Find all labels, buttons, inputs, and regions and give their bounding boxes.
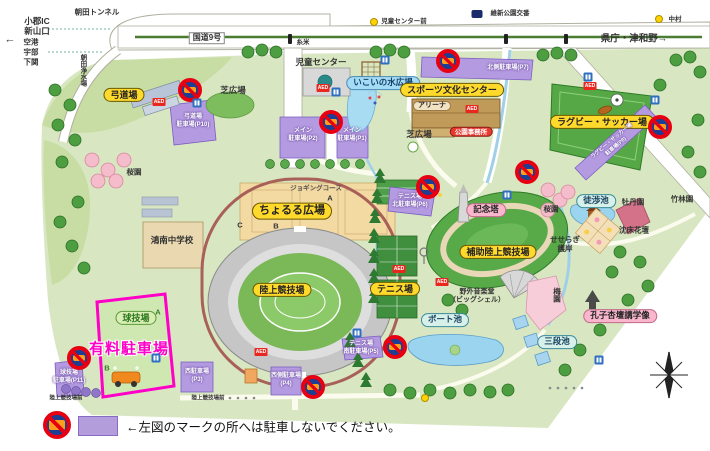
restroom-icon <box>584 73 593 82</box>
aed-icon: AED <box>153 98 166 106</box>
dest-shinyamaguchi: 新山口 <box>24 26 50 36</box>
jogging-course-label: ジョギングコース <box>290 185 342 193</box>
car-icon <box>654 124 666 130</box>
legend-no-parking-icon <box>43 411 71 439</box>
bandshell-label: 野外音楽堂 （ビッグシェル） <box>449 289 505 306</box>
konan-school-label: 鴻南中学校 <box>151 235 194 245</box>
marker-c: C <box>237 221 242 230</box>
itoyone-label: 糸米 <box>297 39 310 47</box>
kyugijo-label: 球技場 <box>115 311 156 325</box>
north-p7-label: 北側駐車場(P7) <box>487 65 528 73</box>
restroom-icon <box>381 56 390 65</box>
ishin-koban-label: 維新公園交番 <box>491 10 530 18</box>
bus-icon <box>49 420 65 430</box>
sports-center-label: スポーツ文化センター <box>400 83 504 97</box>
restroom-icon <box>152 354 161 363</box>
marker-a: A <box>327 194 332 203</box>
shibahiroba-nw-label: 芝広場 <box>220 85 246 95</box>
rikujo-mae-stop-2: 陸上競技場前 <box>191 396 224 403</box>
legend-parking-swatch <box>78 416 118 436</box>
restroom-icon <box>353 329 362 338</box>
kinento-label: 記念塔 <box>466 203 506 217</box>
tennis-s-p5-label: テニス場 南駐車場(P5) <box>343 341 378 357</box>
bus-stop-dot <box>370 18 378 26</box>
main-p2-label: メイン 駐車場(P2) <box>288 128 317 144</box>
restroom-icon <box>651 96 660 105</box>
no-parking-icon <box>648 115 672 139</box>
zone-marker-b: B <box>104 364 109 373</box>
no-parking-icon <box>416 175 440 199</box>
shibahiroba-c-label: 芝広場 <box>406 129 432 139</box>
chikurin-label: 竹林園 <box>671 195 694 204</box>
no-parking-icon <box>436 49 460 73</box>
arena-label: アリーナ <box>413 101 451 111</box>
no-parking-icon <box>515 160 539 184</box>
west-p3-label: 西駐車場 (P3) <box>185 369 209 385</box>
jido-center-mae-stop: 児童センター前 <box>381 18 427 26</box>
bus-icon <box>73 355 85 361</box>
ume-garden-label: 梅園 <box>553 288 562 303</box>
rikujo-label: 陸上競技場 <box>252 283 311 297</box>
rugby-soccer-label: ラグビー・サッカー場 <box>550 115 654 129</box>
no-parking-icon <box>67 346 91 370</box>
confucius-statue-label: 孔子杏壇講学像 <box>583 309 657 323</box>
car-icon <box>389 344 401 350</box>
sakura-west-label: 桜園 <box>127 168 142 177</box>
sunken-garden-label: 沈床花壇 <box>619 226 649 235</box>
car-icon <box>521 169 533 175</box>
restroom-icon <box>595 356 604 365</box>
car-icon <box>325 119 337 125</box>
bus-stop-dot <box>421 394 429 402</box>
park-map: 小郡IC 新山口 空港 宇部 下関 ← 朝田トンネル 国道9号 朝田浄水場 糸米… <box>0 0 710 451</box>
dest-ogori: 小郡IC <box>24 16 50 26</box>
aed-icon: AED <box>584 82 597 90</box>
car-icon <box>422 184 434 190</box>
park-office-label: 公園事務所 <box>450 127 493 137</box>
kyudojo-label: 弓道場 <box>103 88 144 102</box>
sandan-pond-label: 三段池 <box>537 335 577 349</box>
botan-garden-label: 牡丹園 <box>622 198 645 207</box>
dest-ube: 宇部 <box>24 48 39 57</box>
traffic-light-icon <box>288 34 292 44</box>
jido-center-label: 児童センター <box>295 57 346 67</box>
tennis-label: テニス場 <box>370 282 420 296</box>
helipad-icon <box>408 142 419 153</box>
aed-icon: AED <box>466 105 479 113</box>
no-parking-icon <box>383 335 407 359</box>
aed-icon: AED <box>393 265 406 273</box>
aed-icon: AED <box>436 278 449 286</box>
restroom-icon <box>332 88 341 97</box>
asada-water-label: 朝田浄水場 <box>78 54 86 87</box>
kyugijo-p11-label: 球技場 駐車場(P11) <box>53 370 85 386</box>
bus-icon <box>184 87 196 93</box>
no-parking-icon <box>301 375 325 399</box>
west-side-p4-label: 西側駐車場 (P4) <box>271 373 301 389</box>
rikujo-mae-stop: 陸上競技場前 <box>49 396 82 403</box>
traffic-light-icon <box>564 34 568 44</box>
no-parking-icon <box>319 110 343 134</box>
route9-label: 国道9号 <box>189 32 225 44</box>
restroom-icon <box>503 191 512 200</box>
police-box-icon <box>472 10 483 18</box>
kencho-direction: 県庁・津和野→ <box>601 33 668 44</box>
main-p1-label: メイン 駐車場(P1) <box>337 128 366 144</box>
nakamura-stop: 中村 <box>669 16 682 24</box>
bus-icon <box>307 384 319 390</box>
car-icon <box>442 58 454 64</box>
restroom-icon <box>193 99 202 108</box>
traffic-light-icon <box>504 34 508 44</box>
map-overlay: 小郡IC 新山口 空港 宇部 下関 ← 朝田トンネル 国道9号 朝田浄水場 糸米… <box>0 0 710 451</box>
bus-stop-dot <box>655 15 663 23</box>
tosho-pond-label: 徒渉池 <box>576 194 616 208</box>
dest-shimonoseki: 下関 <box>24 58 39 67</box>
aed-icon: AED <box>255 348 268 356</box>
marker-b: B <box>273 222 278 231</box>
hojo-rikujo-label: 補助陸上競技場 <box>459 245 536 259</box>
choruru-label: ちょるる広場 <box>252 203 332 220</box>
west-arrow: ← <box>5 33 16 46</box>
asada-tunnel-label: 朝田トンネル <box>75 8 120 17</box>
kyudo-parking-label: 弓道場 駐車場(P10) <box>177 114 210 130</box>
dest-kuko: 空港 <box>24 38 39 47</box>
zone-marker-a: A <box>155 308 160 317</box>
aed-icon: AED <box>317 84 330 92</box>
legend-note: ←左図のマークの所へは駐車しないでください。 <box>126 417 401 436</box>
seseragi-label: せせらぎ 護岸 <box>550 235 580 253</box>
boat-pond-label: ボート池 <box>421 313 469 327</box>
sakura-east-label: 桜園 <box>544 205 559 214</box>
